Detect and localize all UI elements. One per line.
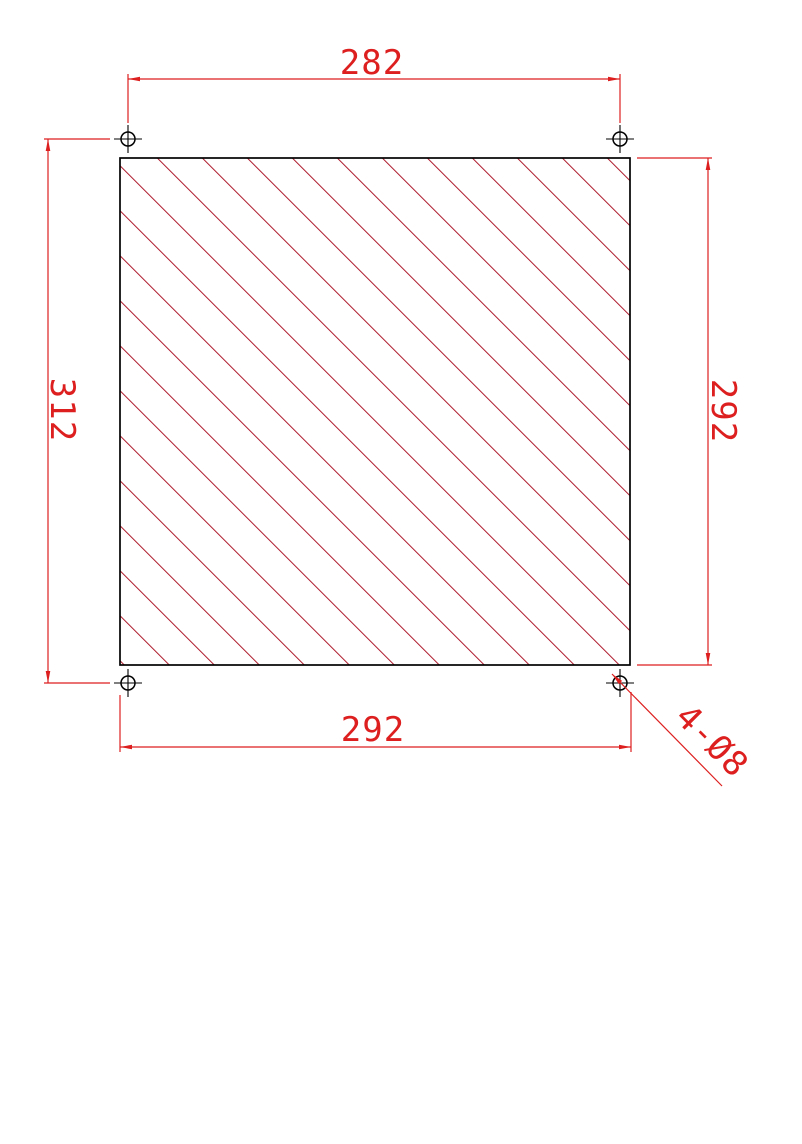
arrow-right-bottom	[706, 653, 711, 665]
dim-top-label: 282	[340, 43, 404, 83]
leader-label: 4-Ø8	[667, 697, 756, 786]
arrow-top-left	[128, 77, 140, 82]
panel-hatch-fill	[120, 158, 630, 665]
dim-bottom-label: 292	[341, 710, 405, 750]
arrow-top-right	[608, 77, 620, 82]
arrow-left-top	[46, 139, 51, 151]
cad-drawing: 282 312 292 292 4-Ø8	[0, 0, 802, 1144]
arrow-right-top	[706, 158, 711, 170]
arrow-bottom-left	[120, 745, 132, 750]
arrow-bottom-right	[619, 745, 631, 750]
dim-right	[637, 158, 712, 665]
dim-right-label: 292	[703, 379, 743, 443]
drawing-canvas: 282 312 292 292 4-Ø8	[0, 0, 802, 1144]
hole-symbol-top-right	[606, 125, 634, 153]
arrow-left-bottom	[46, 671, 51, 683]
hole-symbol-top-left	[114, 125, 142, 153]
dim-left-label: 312	[42, 378, 82, 442]
hole-symbol-bottom-left	[114, 669, 142, 697]
